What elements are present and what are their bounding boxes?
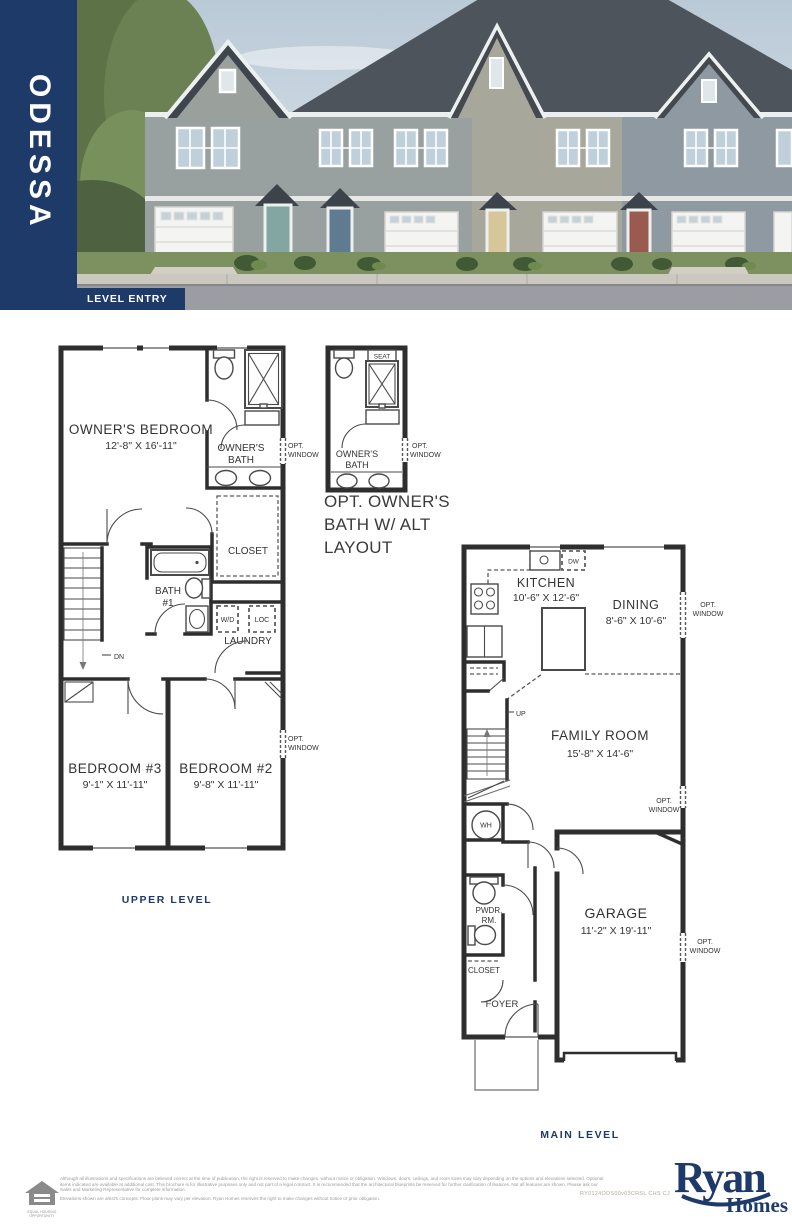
toilet-icon — [214, 350, 235, 379]
bathtub-icon — [151, 550, 209, 575]
stairs-dn-label: DN — [114, 654, 124, 661]
garage-label: GARAGE — [585, 905, 648, 921]
dining-label: DINING — [613, 598, 660, 612]
opt-window-label: WINDOW — [649, 807, 680, 814]
bedroom2-dim: 9'-8" X 11'-11" — [194, 779, 259, 791]
shower-icon — [366, 361, 398, 408]
owners-bath-label: BATH — [345, 460, 368, 470]
main-level-plan: DW KITCHEN 10'-6" X 12'-6" DINING 8'-6" … — [458, 540, 758, 1100]
bedroom3-label: BEDROOM #3 — [68, 761, 162, 776]
opt-bath-caption: OPT. OWNER'S BATH W/ ALT LAYOUT — [324, 490, 474, 559]
model-name-sidebar: ODESSA — [0, 0, 77, 310]
opt-bath-caption-line: LAYOUT — [324, 536, 474, 559]
opt-window-label: OPT. — [697, 939, 713, 946]
family-room-label: FAMILY ROOM — [551, 728, 649, 743]
closet-label: CLOSET — [468, 966, 500, 975]
disclaimer-text: Although all illustrations and specifica… — [60, 1176, 608, 1201]
bedroom2-label: BEDROOM #2 — [179, 761, 273, 776]
bedroom3-dim: 9'-1" X 11'-11" — [83, 779, 148, 791]
opt-window-label: OPT. — [288, 443, 304, 450]
kitchen-island — [542, 608, 585, 670]
main-level-caption: MAIN LEVEL — [520, 1129, 640, 1141]
closet-label: CLOSET — [228, 546, 268, 557]
opt-window-label: OPT. — [656, 798, 672, 805]
opt-owners-bath-plan: SEAT OWNER'S BATH OPT. WINDOW — [320, 340, 450, 500]
shower-icon — [245, 350, 282, 408]
dishwasher-label: DW — [568, 559, 580, 566]
bath1-label: #1 — [162, 598, 174, 609]
water-heater-label: WH — [480, 823, 492, 830]
owners-bath-label: OWNER'S — [336, 449, 378, 459]
opt-window-label: WINDOW — [410, 452, 441, 459]
dining-dim: 8'-6" X 10'-6" — [606, 615, 667, 627]
upper-level-caption: UPPER LEVEL — [107, 894, 227, 906]
plan-code: RY0124ODS00v03CRSL CHS CJ — [480, 1191, 670, 1197]
kitchen-label: KITCHEN — [517, 576, 575, 590]
seat-label: SEAT — [374, 354, 391, 361]
stoop — [475, 1040, 538, 1090]
garage-dim: 11'-2" X 19'-11" — [581, 925, 652, 937]
opt-window-label: WINDOW — [288, 452, 319, 459]
floor-trim — [145, 196, 792, 201]
loc-label: LOC — [255, 617, 269, 624]
garage-door-opening — [564, 1052, 676, 1066]
owners-bedroom-dim: 12'-8" X 16'-11" — [105, 440, 177, 452]
stove-icon — [471, 584, 498, 614]
owners-bedroom-label: OWNER'S BEDROOM — [69, 422, 213, 437]
optional-window — [403, 438, 408, 462]
brand-name-bottom: Homes — [726, 1193, 788, 1217]
upper-level-plan: OWNER'S BATH OPT. WINDOW OWNER'S BEDROOM… — [55, 338, 345, 862]
powder-room-label: RM. — [482, 916, 497, 925]
opt-bath-caption-line: BATH W/ ALT — [324, 513, 474, 536]
washer-dryer-label: W/D — [221, 617, 235, 624]
owners-bath-label: OWNER'S — [218, 443, 265, 454]
opt-bath-caption-line: OPT. OWNER'S — [324, 490, 474, 513]
level-entry-banner: LEVEL ENTRY — [77, 288, 185, 310]
curb — [77, 284, 792, 286]
equal-housing-logo: EQUAL HOUSING OPPORTUNITY — [22, 1180, 62, 1219]
bath1-label: BATH — [155, 586, 181, 597]
opt-window-label: WINDOW — [690, 948, 721, 955]
toilet-icon — [334, 350, 354, 378]
toilet-icon — [186, 578, 211, 598]
equal-housing-house-icon — [23, 1180, 61, 1206]
toilet-icon — [468, 926, 496, 946]
kitchen-dim: 10'-6" X 12'-6" — [513, 592, 580, 604]
refrigerator-icon — [467, 626, 502, 657]
opt-window-label: OPT. — [288, 736, 304, 743]
powder-room-label: PWDR. — [476, 906, 503, 915]
foyer-label: FOYER — [486, 999, 519, 1010]
model-name: ODESSA — [22, 74, 56, 231]
stairs-up-label: UP — [516, 711, 526, 718]
owners-bath-label: BATH — [228, 455, 254, 466]
family-room-dim: 15'-8" X 14'-6" — [567, 748, 634, 760]
opt-window-label: WINDOW — [693, 611, 724, 618]
opt-window-label: OPT. — [700, 602, 716, 609]
opt-window-label: WINDOW — [288, 745, 319, 752]
opt-window-label: OPT. — [412, 443, 428, 450]
kitchen-sink-icon — [530, 551, 560, 570]
ryan-homes-logo: Ryan Homes — [672, 1152, 790, 1218]
sink-icon — [186, 606, 208, 632]
equal-housing-label: OPPORTUNITY — [22, 1215, 62, 1219]
elevation-rendering — [77, 0, 792, 310]
